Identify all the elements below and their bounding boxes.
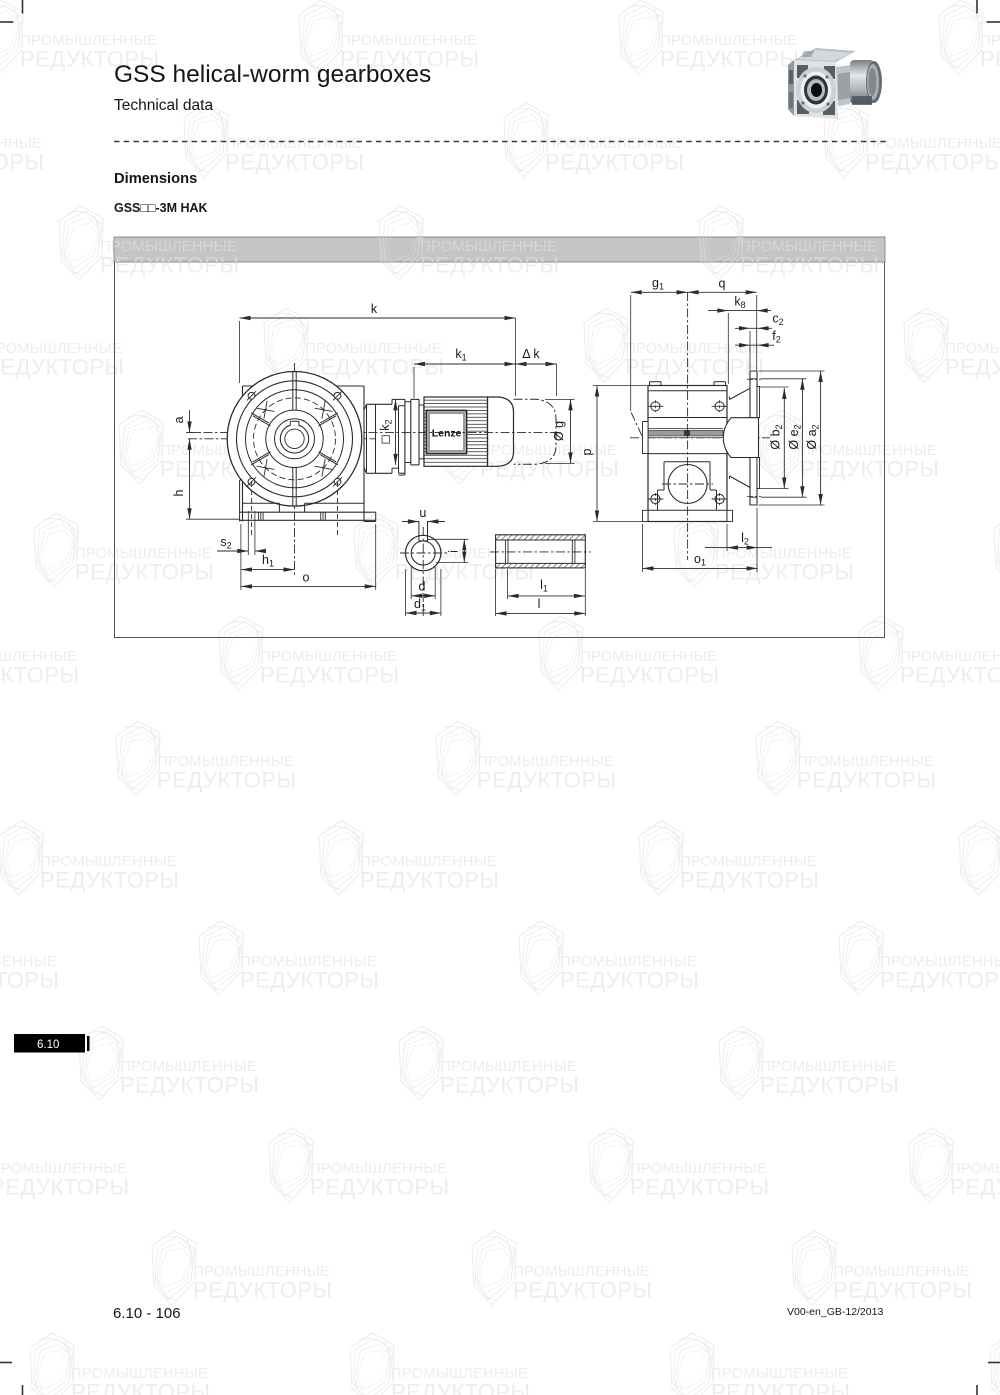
svg-text:u: u bbox=[419, 506, 426, 520]
svg-text:k8: k8 bbox=[734, 295, 745, 311]
svg-text:GSS□□-3M HAK: GSS□□-3M HAK bbox=[114, 201, 208, 215]
svg-text:o1: o1 bbox=[694, 552, 706, 568]
svg-text:Δ k: Δ k bbox=[522, 347, 540, 361]
svg-text:o: o bbox=[303, 571, 310, 585]
svg-text:l1: l1 bbox=[540, 578, 548, 594]
svg-text:q: q bbox=[719, 277, 726, 291]
svg-text:Ø g: Ø g bbox=[552, 421, 566, 441]
svg-text:Technical data: Technical data bbox=[114, 97, 213, 114]
svg-text:Ø a2: Ø a2 bbox=[805, 424, 821, 449]
svg-text:h: h bbox=[172, 489, 186, 496]
svg-text:c2: c2 bbox=[772, 312, 783, 328]
svg-text:Ø b2: Ø b2 bbox=[769, 424, 785, 449]
svg-text:6.10 - 106: 6.10 - 106 bbox=[113, 1305, 181, 1322]
svg-text:V00-en_GB-12/2013: V00-en_GB-12/2013 bbox=[787, 1306, 883, 1318]
svg-text:Lenze: Lenze bbox=[432, 428, 462, 440]
svg-text:d: d bbox=[419, 580, 426, 594]
svg-text:p: p bbox=[580, 448, 594, 455]
svg-text:l: l bbox=[538, 597, 541, 611]
svg-text:l2: l2 bbox=[741, 531, 749, 547]
svg-text:s2: s2 bbox=[220, 535, 231, 551]
svg-text:f2: f2 bbox=[772, 329, 781, 345]
svg-text:g1: g1 bbox=[652, 276, 664, 292]
svg-text:GSS helical-worm gearboxes: GSS helical-worm gearboxes bbox=[114, 61, 431, 88]
svg-text:h1: h1 bbox=[262, 553, 274, 569]
svg-text:Dimensions: Dimensions bbox=[114, 171, 197, 187]
svg-text:k: k bbox=[371, 302, 378, 316]
svg-text:a: a bbox=[172, 416, 186, 423]
svg-text:6.10: 6.10 bbox=[37, 1039, 59, 1051]
svg-text:◻ k2: ◻ k2 bbox=[378, 419, 394, 444]
svg-text:i: i bbox=[447, 550, 461, 553]
svg-text:d1: d1 bbox=[414, 597, 426, 613]
svg-text:k1: k1 bbox=[455, 347, 466, 363]
svg-text:Ø e2: Ø e2 bbox=[787, 424, 803, 449]
